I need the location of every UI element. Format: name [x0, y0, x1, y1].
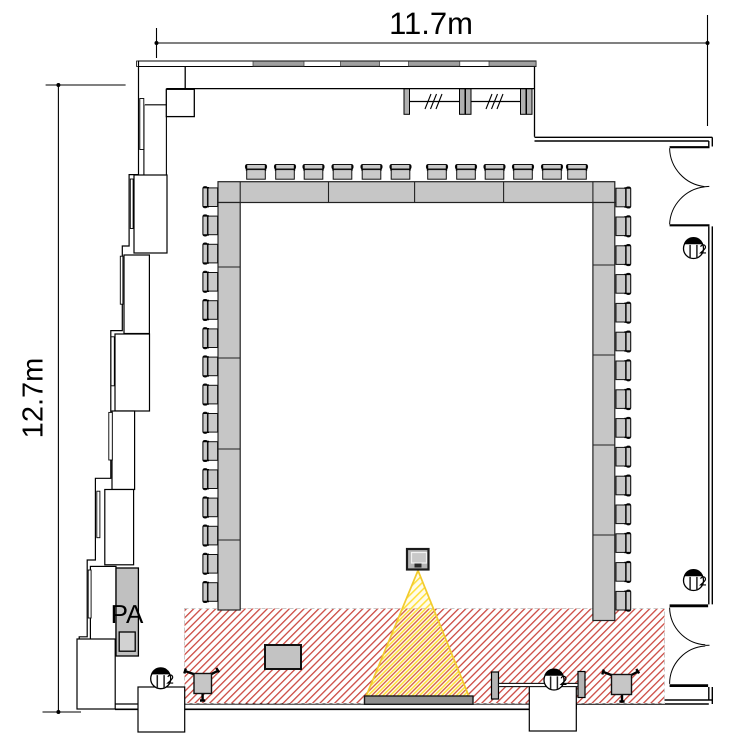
svg-text:12.7m: 12.7m	[18, 358, 50, 439]
svg-text:PA: PA	[111, 599, 144, 629]
svg-text:11.7m: 11.7m	[389, 6, 473, 41]
